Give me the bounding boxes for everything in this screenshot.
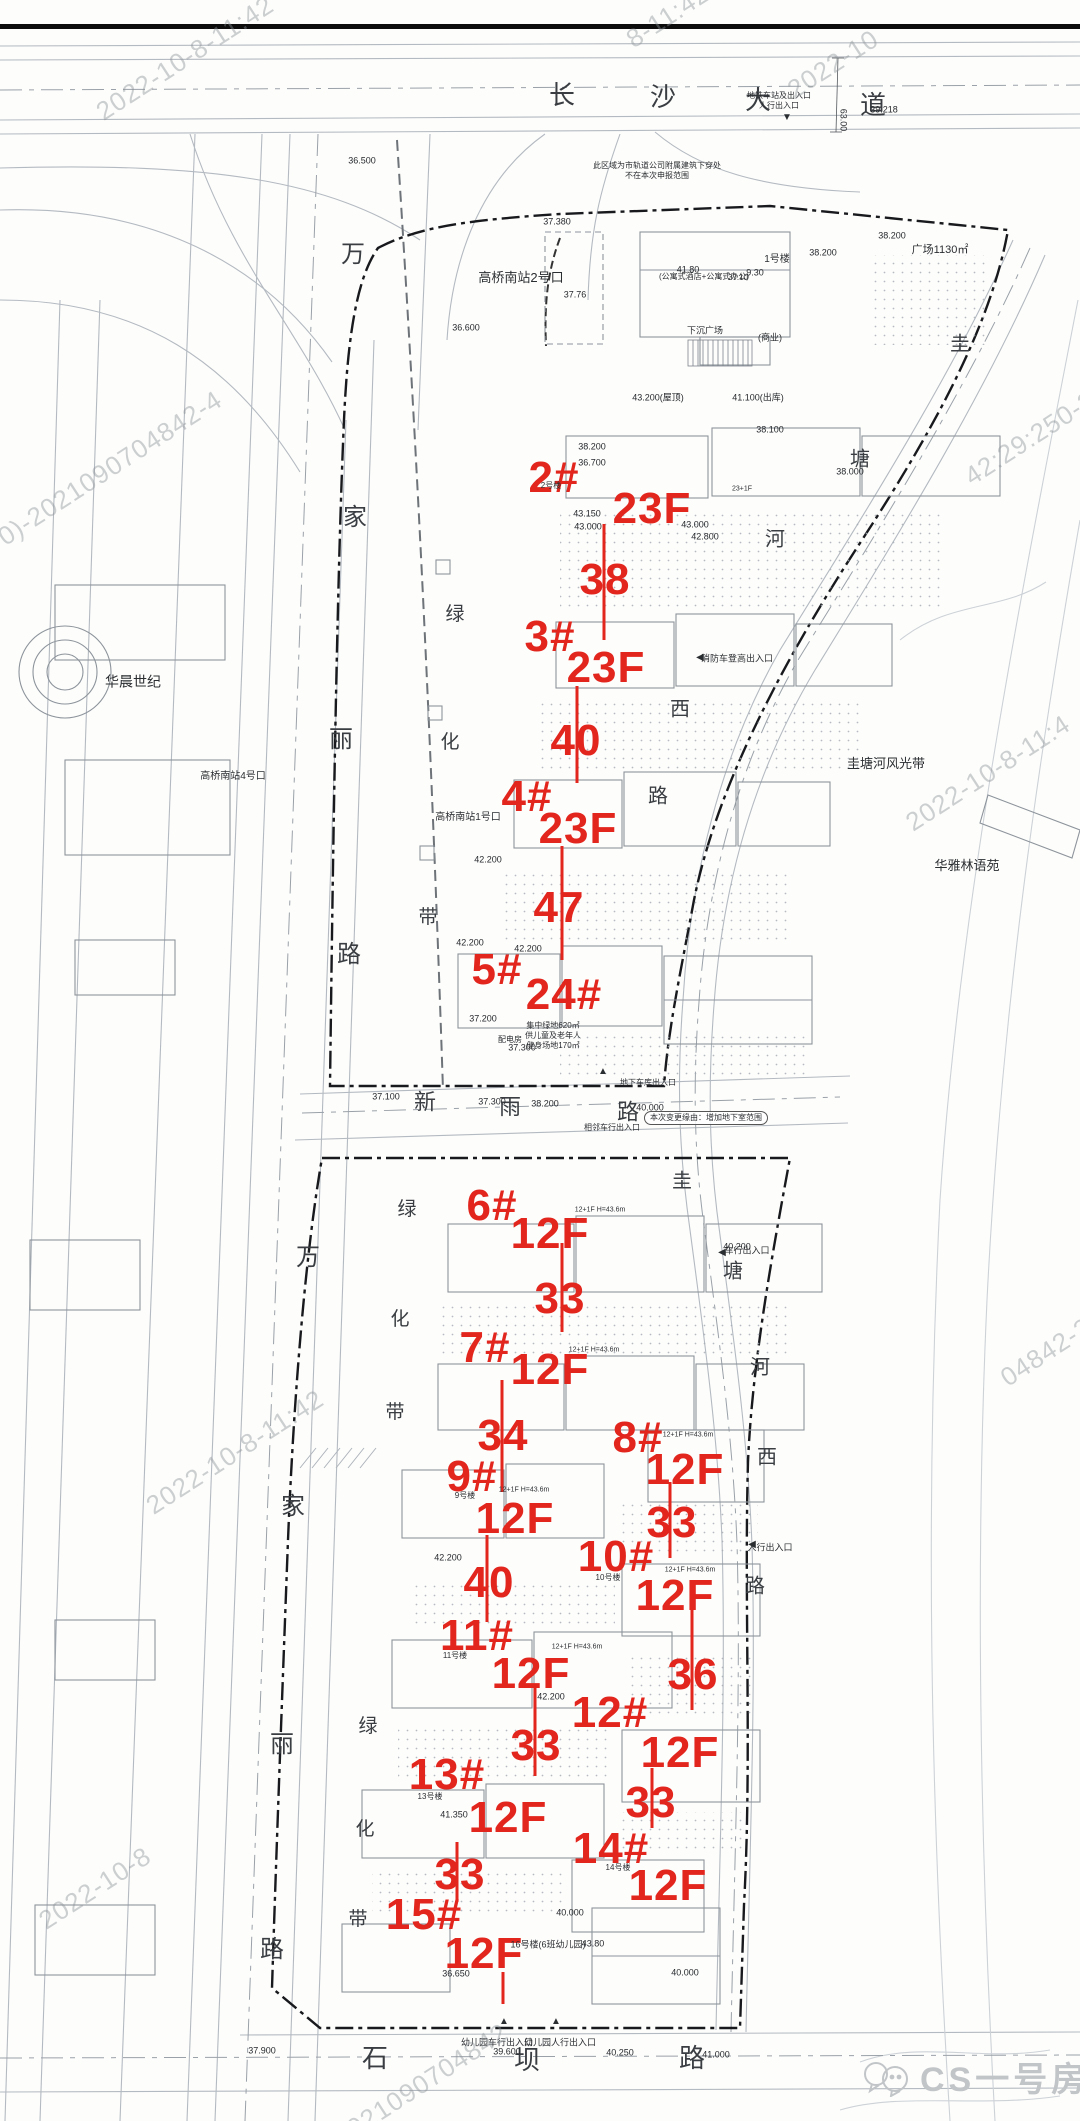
watermark-logo: CS一号房评: [862, 2052, 1080, 2101]
metro-station-edge: [546, 238, 560, 346]
annotation-leader-line: [456, 1842, 459, 1902]
logo-text: CS一号房评: [920, 2052, 1080, 2101]
site-plan-linework: [0, 0, 1080, 2121]
road-network: [0, 42, 1080, 2121]
annotation-leader-line: [603, 524, 606, 640]
annotation-leader-line: [691, 1608, 694, 1710]
chat-bubbles-icon: [862, 2057, 914, 2097]
top-border-line: [0, 24, 1080, 29]
site-boundary: [272, 206, 1008, 2028]
dimension-line: [830, 58, 844, 132]
annotation-leader-line: [501, 1380, 504, 1492]
annotation-leader-line: [669, 1482, 672, 1558]
annotation-leader-line: [534, 1686, 537, 1776]
annotation-leader-line: [651, 1768, 654, 1828]
annotation-leader-line: [561, 846, 564, 960]
annotation-leader-line: [486, 1535, 489, 1622]
annotation-leader-line: [561, 1243, 564, 1332]
crosswalk-hatch: [300, 1448, 376, 1468]
parking-stalls: [688, 340, 752, 366]
annotation-leader-line: [502, 1972, 505, 2004]
annotation-leader-line: [576, 686, 579, 783]
site-plan-canvas: 2#23F383#23F404#23F475#24#6#12F337#12F34…: [0, 0, 1080, 2121]
road-centerlines: [0, 85, 1080, 2121]
metro-line: [397, 140, 443, 1090]
